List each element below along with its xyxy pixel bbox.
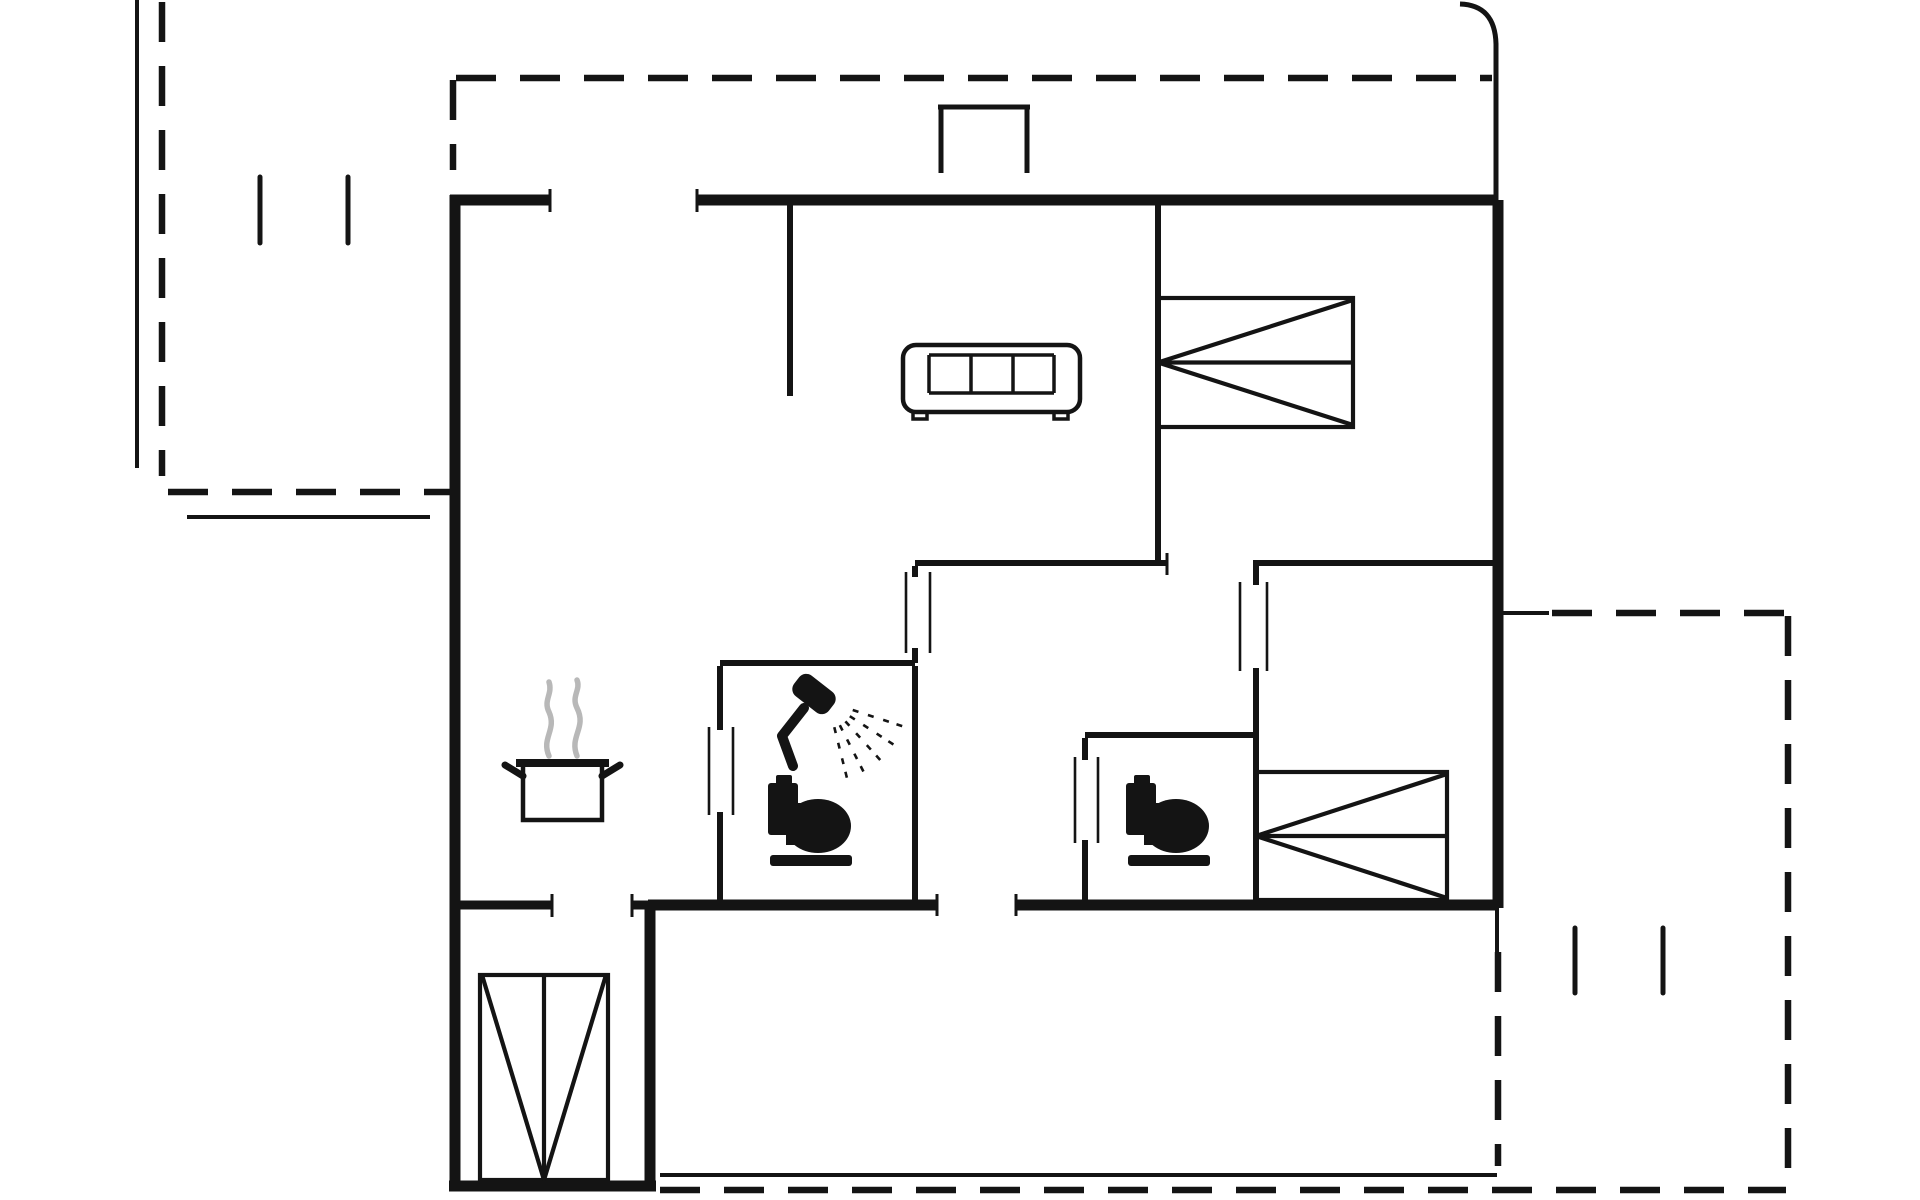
spray-dot-1-1	[863, 725, 868, 728]
spray-dot-0-3	[896, 724, 902, 726]
spray-dot-1-3	[888, 741, 893, 744]
spray-dot-3-0	[840, 725, 843, 730]
spray-dot-1-0	[850, 716, 855, 719]
spray-dot-0-1	[868, 715, 874, 717]
spray-dot-2-3	[876, 756, 880, 760]
floor-plan-page	[0, 0, 1920, 1200]
bed-fold-line-2	[1256, 836, 1447, 898]
floor-plan-canvas	[0, 0, 1920, 1200]
pot-body	[523, 762, 602, 820]
shower-arm	[782, 708, 804, 766]
spray-dot-3-1	[847, 739, 850, 744]
toilet-base	[1128, 855, 1210, 866]
bed-bedroom1-icon	[1158, 298, 1353, 427]
bed-fold-line-2	[544, 975, 606, 1180]
spray-dot-2-2	[867, 745, 871, 749]
toilet-bathroom-icon	[768, 775, 852, 866]
toilet-wc-icon	[1126, 775, 1210, 866]
steam-wave-1	[547, 682, 552, 756]
bed-fold-line-0	[1158, 300, 1353, 363]
bed-fold-line-2	[1158, 363, 1353, 426]
toilet-bowl	[1143, 799, 1209, 853]
steam-wave-2	[575, 680, 580, 756]
bed-fold-line-0	[1256, 774, 1447, 836]
toilet-bowl	[785, 799, 851, 853]
shower-spray-dots	[834, 710, 902, 778]
spray-dot-3-2	[854, 754, 857, 759]
toilet-base	[770, 855, 852, 866]
shower-icon	[782, 670, 902, 777]
spray-dot-0-2	[883, 720, 889, 722]
bed-fold-line-0	[482, 975, 544, 1180]
spray-dot-4-2	[842, 758, 843, 764]
spray-dot-3-3	[861, 766, 864, 771]
cooking-pot-icon	[505, 680, 620, 820]
spray-dot-4-0	[834, 727, 835, 733]
spray-dot-0-0	[853, 710, 859, 712]
spray-dot-4-3	[845, 772, 846, 778]
roof-outline-top-right-corner	[1460, 4, 1496, 200]
spray-dot-2-0	[845, 721, 849, 725]
sofa-icon	[903, 345, 1080, 419]
spray-dot-2-1	[856, 733, 860, 737]
bed-bedroom2-icon	[1256, 772, 1447, 900]
bed-utility-icon	[480, 975, 608, 1180]
spray-dot-1-2	[877, 734, 882, 737]
spray-dot-4-1	[838, 743, 839, 749]
